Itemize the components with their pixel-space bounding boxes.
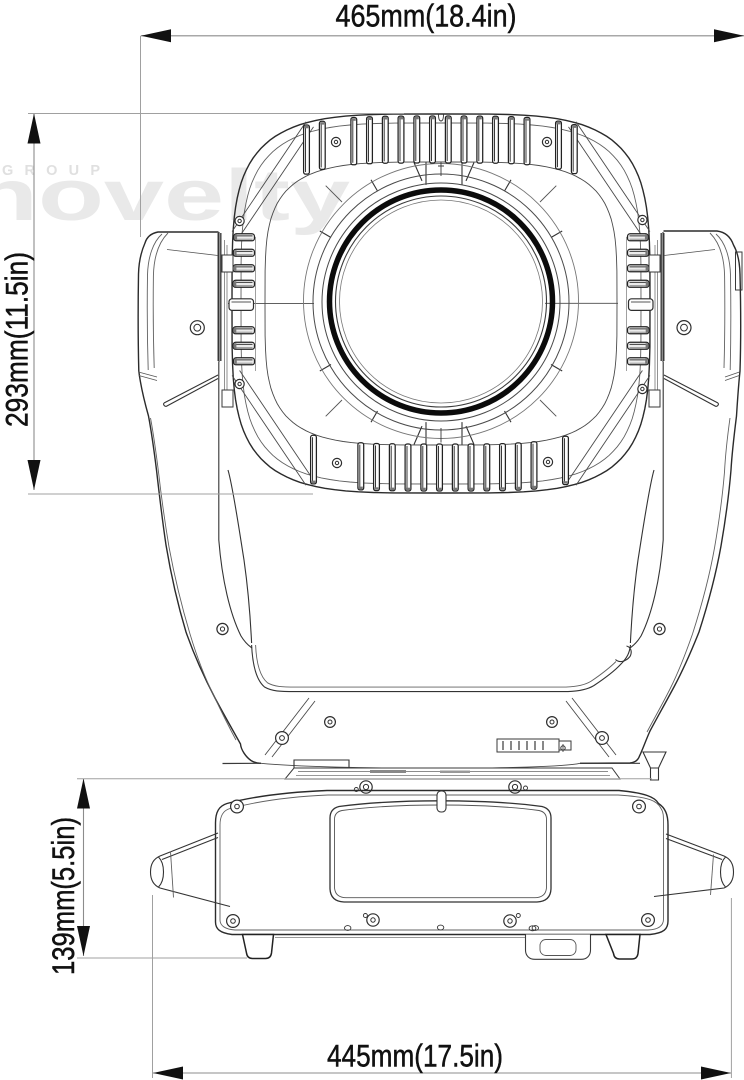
svg-text:293mm(11.5in): 293mm(11.5in) — [0, 252, 35, 427]
svg-text:139mm(5.5in): 139mm(5.5in) — [45, 817, 81, 975]
svg-text:465mm(18.4in): 465mm(18.4in) — [336, 0, 517, 34]
svg-text:445mm(17.5in): 445mm(17.5in) — [327, 1038, 503, 1074]
svg-text:novelty: novelty — [0, 156, 350, 236]
